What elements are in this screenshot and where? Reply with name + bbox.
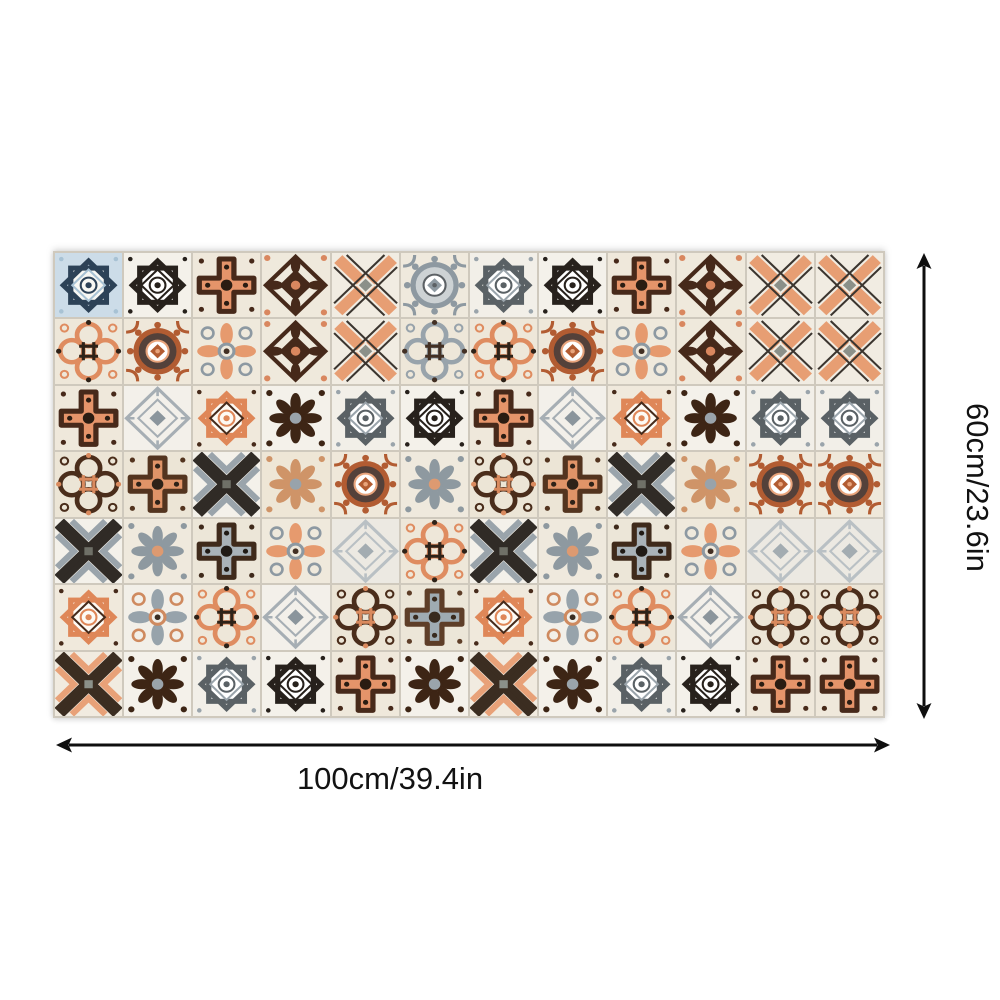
tile-xChevron (193, 452, 260, 516)
tile-mat (53, 251, 885, 718)
height-dimension-arrow (912, 252, 936, 720)
tile-quatGray (401, 319, 468, 383)
tile-quatOrange (608, 585, 675, 649)
tile-diamondGray (262, 585, 329, 649)
tile-crossOrange (55, 386, 122, 450)
tile-xChevron (470, 519, 537, 583)
tile-starGray (470, 253, 537, 317)
tile-xLattice (816, 319, 883, 383)
tile-starOrange (608, 386, 675, 450)
tile-xChevron (55, 519, 122, 583)
tile-quatOrange (470, 319, 537, 383)
tile-starBlack (124, 253, 191, 317)
tile-floralBrown (262, 319, 329, 383)
tile-floralSmall (124, 519, 191, 583)
tile-floralBrown (677, 319, 744, 383)
tile-diamondGray (539, 386, 606, 450)
tile-floralBrown (262, 253, 329, 317)
tile-diamondLight (332, 519, 399, 583)
tile-floralDense (124, 652, 191, 716)
tile-floralDense (401, 652, 468, 716)
tile-starOrange (470, 585, 537, 649)
tile-medGray (401, 253, 468, 317)
tile-diamondLight (816, 519, 883, 583)
width-dimension-arrow (55, 733, 891, 757)
product-image: 60cm/23.6in 100cm/39.4in (0, 0, 1000, 1000)
tile-starBlack (677, 652, 744, 716)
tile-floralCream (262, 452, 329, 516)
tile-quatDark (747, 585, 814, 649)
tile-xChevron (608, 452, 675, 516)
tile-floralSmall (401, 452, 468, 516)
tile-crossHash (124, 452, 191, 516)
tile-starOrange (55, 585, 122, 649)
tile-starGray (747, 386, 814, 450)
tile-crossBrownGray (608, 519, 675, 583)
tile-xOrange (55, 652, 122, 716)
tile-floralDense (677, 386, 744, 450)
tile-floralBrown (677, 253, 744, 317)
tile-petalRings (262, 519, 329, 583)
height-dimension-label: 60cm/23.6in (938, 253, 994, 721)
tile-diamondGray (124, 386, 191, 450)
tile-quatOrange (55, 319, 122, 383)
tile-floralDense (262, 386, 329, 450)
tile-xLattice (747, 319, 814, 383)
tile-starOrange (193, 386, 260, 450)
tile-crossOrange (470, 386, 537, 450)
tile-medOB (816, 452, 883, 516)
tile-petalRings (677, 519, 744, 583)
tile-starBlack (262, 652, 329, 716)
tile-xLattice (332, 253, 399, 317)
width-dimension-label: 100cm/39.4in (130, 762, 650, 796)
tile-quatOrange (193, 585, 260, 649)
tile-floralCream (677, 452, 744, 516)
tile-floralDense (539, 652, 606, 716)
tile-xLattice (332, 319, 399, 383)
tile-quatOrange (401, 519, 468, 583)
tile-petalLeaf (539, 585, 606, 649)
tile-starGray (816, 386, 883, 450)
tile-quatDark (55, 452, 122, 516)
tile-diamondGray (677, 585, 744, 649)
tile-crossOrange (608, 253, 675, 317)
tile-medOB (124, 319, 191, 383)
tile-medOB (747, 452, 814, 516)
tile-quatDark (816, 585, 883, 649)
tile-petalRings (193, 319, 260, 383)
tile-crossBrownGray (193, 519, 260, 583)
tile-starGray (608, 652, 675, 716)
tile-crossGrayFrame (401, 585, 468, 649)
tile-starBlack (401, 386, 468, 450)
tile-diamondLight (747, 519, 814, 583)
tile-quatDark (332, 585, 399, 649)
tile-crossOrange (193, 253, 260, 317)
tile-xOrange (470, 652, 537, 716)
tile-starBlue (55, 253, 122, 317)
tile-xLattice (747, 253, 814, 317)
tile-petalLeaf (124, 585, 191, 649)
tile-starGray (332, 386, 399, 450)
tile-starBlack (539, 253, 606, 317)
tile-petalRings (608, 319, 675, 383)
tile-crossOrange (332, 652, 399, 716)
tile-medOB (332, 452, 399, 516)
tile-xLattice (816, 253, 883, 317)
tile-crossOrange (747, 652, 814, 716)
tile-crossHash (539, 452, 606, 516)
tile-floralSmall (539, 519, 606, 583)
tile-crossOrange (816, 652, 883, 716)
tile-quatDark (470, 452, 537, 516)
tile-medOB (539, 319, 606, 383)
tile-starGray (193, 652, 260, 716)
